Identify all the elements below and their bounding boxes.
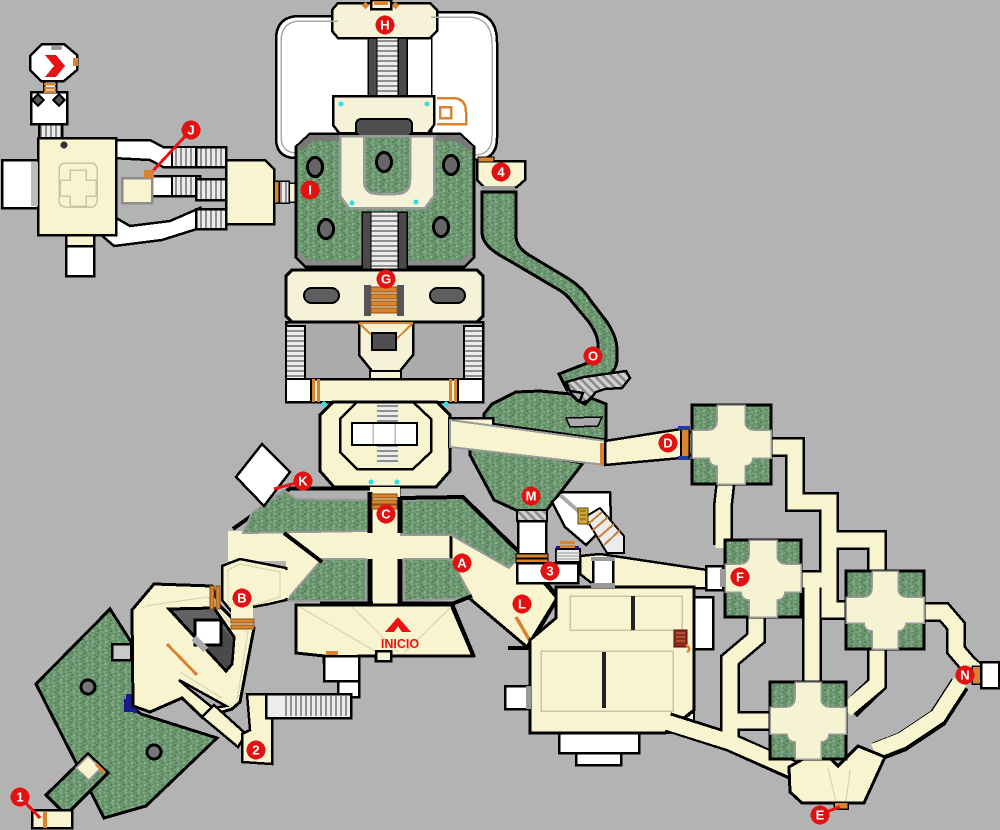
svg-text:M: M (526, 489, 537, 504)
svg-text:G: G (381, 272, 391, 287)
svg-text:D: D (663, 436, 672, 451)
svg-text:1: 1 (16, 790, 23, 805)
svg-text:4: 4 (497, 165, 505, 180)
svg-text:H: H (380, 18, 389, 33)
svg-text:B: B (237, 591, 246, 606)
svg-text:N: N (960, 668, 969, 683)
svg-text:2: 2 (252, 743, 259, 758)
svg-text:O: O (588, 349, 598, 364)
svg-text:A: A (457, 556, 467, 571)
svg-text:3: 3 (546, 564, 553, 579)
svg-text:C: C (381, 507, 391, 522)
svg-text:INICIO: INICIO (381, 637, 419, 651)
svg-text:L: L (518, 597, 526, 612)
svg-text:K: K (298, 474, 308, 489)
svg-text:I: I (308, 183, 312, 198)
svg-text:J: J (187, 123, 194, 138)
svg-text:F: F (736, 570, 744, 585)
svg-text:E: E (816, 808, 825, 823)
